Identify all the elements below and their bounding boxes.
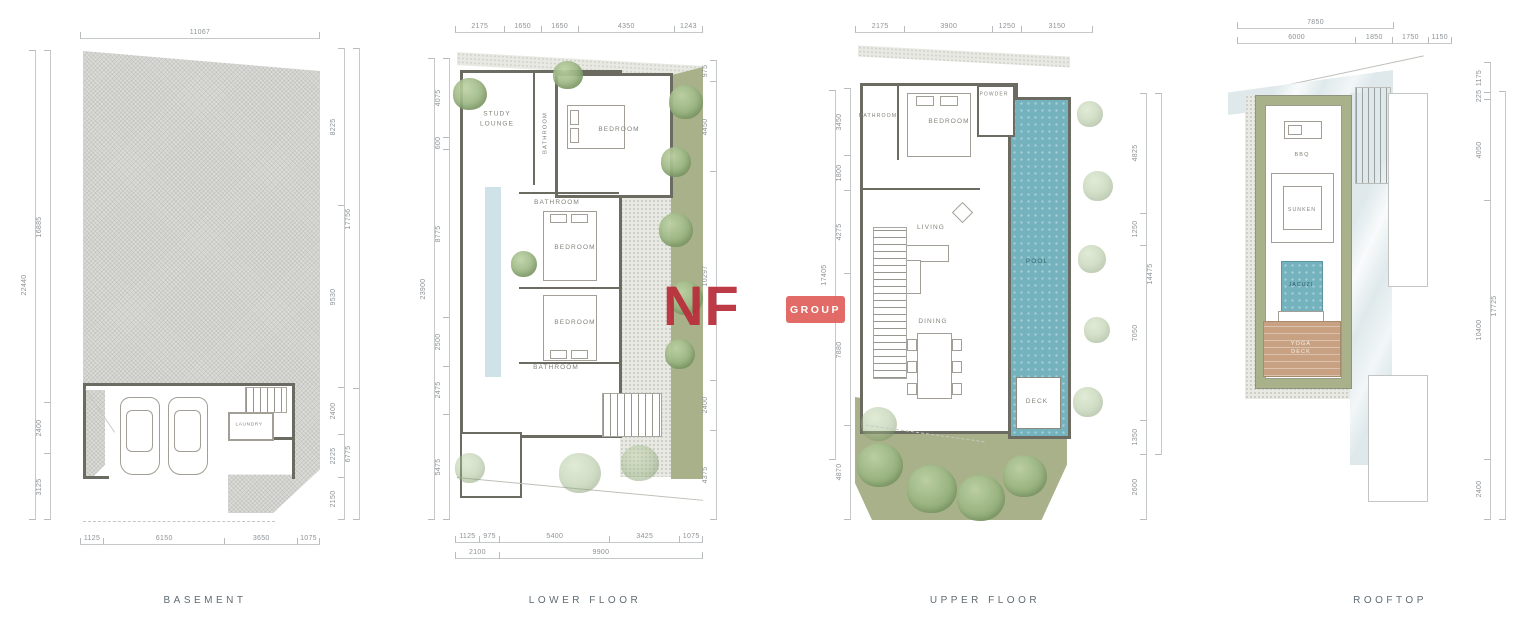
- room-label-dining: DINING: [916, 317, 949, 327]
- room-label-bathroom: BATHROOM: [534, 198, 580, 208]
- floor-plans-sheet: LAUNDRY 11067 22440 1688524003125 822595…: [0, 0, 1525, 631]
- dim-segment: 6150: [103, 538, 224, 545]
- dim-label: 4870: [836, 464, 843, 481]
- dim-label: 4275: [836, 224, 843, 241]
- dim-segment: 6775: [353, 388, 360, 520]
- dim-label: 1350: [1132, 429, 1139, 446]
- dim-segment: 2400: [338, 387, 345, 434]
- dim-segment: 2225: [338, 434, 345, 477]
- dim-label: 2600: [1132, 479, 1139, 496]
- dim-segment: 3150: [1021, 26, 1093, 33]
- dim-label: 16885: [36, 216, 43, 237]
- dim-segment: 9900: [499, 552, 703, 559]
- dim-label: 6775: [345, 446, 352, 463]
- dim-segment: 1125: [455, 536, 479, 543]
- dim-segment: 600: [443, 137, 450, 149]
- dim-label: 8225: [330, 119, 337, 136]
- tree: [511, 251, 537, 277]
- tree: [559, 453, 601, 493]
- dim-chain-upper-right-inner: 48251250705013502600: [1133, 93, 1146, 520]
- bed-pillow: [940, 96, 958, 106]
- chair: [907, 339, 917, 351]
- laundry-label: LAUNDRY: [235, 421, 262, 428]
- dim-chain-basement-top: 11067: [80, 26, 320, 39]
- room-label-bathroom: BATHROOM: [533, 363, 579, 373]
- dim-label: 23900: [420, 279, 427, 300]
- dim-segment: 3425: [609, 536, 679, 543]
- room-label-jacuzzi: JACUZI: [1289, 282, 1314, 290]
- dim-label: 3450: [836, 114, 843, 131]
- dim-segment: 2500: [443, 317, 450, 366]
- dim-segment: 17405: [829, 90, 836, 460]
- dim-label: 2175: [471, 23, 488, 30]
- tree: [1084, 317, 1110, 343]
- dim-label: 4075: [435, 89, 442, 106]
- floor-label-rooftop: ROOFTOP: [1300, 595, 1480, 606]
- dim-segment: 8775: [443, 149, 450, 317]
- dim-label: 2400: [702, 397, 709, 414]
- dim-segment: 1075: [679, 536, 703, 543]
- dim-label: 2100: [469, 549, 486, 556]
- roof-terrace-outline: [1368, 375, 1428, 502]
- bed-pillow: [916, 96, 934, 106]
- tree: [1073, 387, 1103, 417]
- tree: [957, 475, 1005, 521]
- dim-segment: 9530: [338, 205, 345, 387]
- upper-floor-plan: BATHROOM BEDROOM POWDER LIVING DINING PO…: [855, 45, 1105, 525]
- dim-chain-upper-right-outer: 14475: [1148, 93, 1161, 455]
- dim-segment: 6000: [1237, 37, 1355, 44]
- room-label-powder: POWDER: [979, 91, 1008, 99]
- dim-label: 2400: [330, 403, 337, 420]
- roof-terrace-outline: [1388, 93, 1428, 287]
- dim-chain-rooftop-top-outer: 7850: [1237, 16, 1394, 29]
- dim-chain-basement-left-inner: 1688524003125: [37, 50, 50, 520]
- pergola-slats: [1355, 87, 1391, 184]
- dim-chain-rooftop-right-inner: 11752254050104002400: [1477, 62, 1490, 520]
- dim-label: 3650: [253, 535, 270, 542]
- dim-segment: 7880: [844, 273, 851, 425]
- dim-chain-lower-left-inner: 40756008775250024755475: [436, 58, 449, 520]
- car-roof: [174, 410, 201, 452]
- dim-label: 1150: [1432, 34, 1448, 41]
- tree: [907, 465, 957, 513]
- room-label-bbq: BBQ: [1295, 151, 1310, 159]
- dim-segment: 1250: [992, 26, 1021, 33]
- dim-label: 975: [702, 65, 709, 78]
- tree: [553, 61, 583, 89]
- dim-segment: 4375: [710, 430, 717, 520]
- dim-segment: 2400: [1484, 459, 1491, 520]
- dim-label: 9900: [593, 549, 610, 556]
- dim-segment: 10400: [1484, 200, 1491, 459]
- bed-pillow: [550, 350, 567, 359]
- dim-chain-upper-top: 2175390012503150: [855, 20, 1093, 33]
- dim-segment: 1850: [1355, 37, 1392, 44]
- dim-label: 10400: [1476, 319, 1483, 340]
- dim-label: 22440: [21, 275, 28, 296]
- dim-label: 6150: [156, 535, 173, 542]
- basement-plot-hatch: [83, 51, 320, 385]
- tree: [1078, 245, 1106, 273]
- tree: [455, 453, 485, 483]
- dim-segment: 8225: [338, 48, 345, 205]
- dim-segment: 1350: [1140, 420, 1147, 454]
- tree: [665, 339, 695, 369]
- dim-segment: 1750: [1392, 37, 1427, 44]
- bed-pillow: [570, 128, 579, 143]
- chair: [907, 361, 917, 373]
- basement-plan: LAUNDRY: [68, 45, 320, 530]
- partition: [519, 192, 619, 194]
- dim-segment: 975: [479, 536, 500, 543]
- dim-chain-lower-bottom-outer: 21009900: [455, 546, 703, 559]
- tree: [669, 85, 703, 119]
- dim-segment: 5400: [499, 536, 609, 543]
- dim-label: 1650: [551, 23, 568, 30]
- chair: [952, 361, 962, 373]
- dim-label: 11067: [190, 29, 210, 36]
- dim-segment: 975: [710, 60, 717, 81]
- study-partition: [533, 73, 535, 185]
- bed-pillow: [571, 350, 588, 359]
- dim-segment: 17756: [353, 48, 360, 388]
- dim-segment: 4870: [844, 425, 851, 520]
- dim-label: 1650: [514, 23, 531, 30]
- dim-label: 1175: [1476, 69, 1483, 85]
- dim-label: 14475: [1147, 264, 1154, 285]
- dim-chain-rooftop-top-inner: 6000185017501150: [1237, 31, 1452, 44]
- dim-label: 6000: [1288, 34, 1305, 41]
- roof-gravel-strip: [1245, 95, 1255, 387]
- dim-segment: 1250: [1140, 213, 1147, 245]
- room-label-bathroom: BATHROOM: [542, 112, 551, 154]
- dim-segment: 2100: [455, 552, 499, 559]
- dim-segment: 2175: [455, 26, 504, 33]
- room-label-sunken: SUNKEN: [1287, 207, 1317, 215]
- dim-label: 1850: [1366, 34, 1383, 41]
- dim-label: 3150: [1049, 23, 1066, 30]
- partition: [860, 188, 980, 190]
- dim-label: 7850: [1307, 19, 1324, 26]
- bed-pillow: [571, 214, 588, 223]
- car: [168, 397, 208, 475]
- room-label-bedroom: BEDROOM: [928, 117, 969, 127]
- garage-wall-top: [83, 383, 295, 386]
- dim-label: 1125: [84, 535, 100, 542]
- dim-segment: 2400: [710, 380, 717, 429]
- dim-segment: 14475: [1155, 93, 1162, 455]
- chair: [907, 383, 917, 395]
- dim-label: 17725: [1491, 295, 1498, 316]
- dim-label: 4050: [1476, 141, 1483, 158]
- dim-label: 9530: [330, 288, 337, 305]
- dim-segment: 2175: [855, 26, 904, 33]
- room-label-living: LIVING: [917, 223, 945, 233]
- dim-label: 600: [435, 137, 442, 150]
- dining-table: [917, 333, 952, 399]
- dim-segment: 1243: [674, 26, 703, 33]
- dim-segment: 22440: [29, 50, 36, 520]
- room-label-deck: DECK: [1026, 397, 1048, 407]
- dim-label: 1250: [999, 23, 1016, 30]
- bed-pillow: [550, 214, 567, 223]
- dim-segment: 5475: [443, 414, 450, 520]
- side-garden-band: [671, 67, 703, 479]
- room-label-bedroom: BEDROOM: [554, 318, 595, 328]
- lower-staircase: [602, 393, 662, 437]
- dim-chain-lower-left-outer: 23900: [421, 58, 434, 520]
- tree: [621, 445, 659, 481]
- watermark-brand-logo: NF: [663, 278, 740, 334]
- floor-label-lower: LOWER FLOOR: [495, 595, 675, 606]
- dim-label: 975: [483, 533, 496, 540]
- floor-label-upper: UPPER FLOOR: [895, 595, 1075, 606]
- dim-segment: 1650: [541, 26, 578, 33]
- dim-label: 17756: [345, 208, 352, 229]
- tree: [659, 213, 693, 247]
- dim-chain-upper-left-outer: 17405: [822, 90, 835, 460]
- dim-label: 3900: [940, 23, 957, 30]
- room-label-bathroom: BATHROOM: [859, 113, 897, 121]
- dim-label: 2225: [330, 448, 337, 465]
- dim-chain-basement-right-inner: 82259530240022252150: [331, 48, 344, 520]
- dim-chain-lower-top: 21751650165043501243: [455, 20, 703, 33]
- car: [120, 397, 160, 475]
- chair: [952, 339, 962, 351]
- dim-label: 5400: [546, 533, 563, 540]
- dim-label: 1125: [459, 533, 475, 540]
- room-label-pool: POOL: [1026, 257, 1048, 267]
- dim-label: 4450: [702, 118, 709, 135]
- dim-label: 2175: [872, 23, 889, 30]
- dim-label: 2400: [1476, 481, 1483, 498]
- garage-wall-left: [83, 383, 86, 479]
- dim-label: 3125: [36, 478, 43, 495]
- dim-label: 225: [1476, 90, 1483, 103]
- tree: [1083, 171, 1113, 201]
- bathroom-partition: [897, 85, 899, 160]
- dim-label: 17405: [821, 265, 828, 286]
- dim-segment: 3450: [844, 88, 851, 155]
- bbq-grill: [1288, 125, 1302, 135]
- dim-segment: 4825: [1140, 93, 1147, 213]
- dim-label: 1800: [836, 165, 843, 182]
- dim-segment: 1150: [1428, 37, 1452, 44]
- room-label-bedroom: BEDROOM: [554, 243, 595, 253]
- dim-segment: 4275: [844, 190, 851, 273]
- floor-label-basement: BASEMENT: [115, 595, 295, 606]
- watermark-box: GROUP: [786, 296, 845, 323]
- tree: [661, 147, 691, 177]
- dim-segment: 7050: [1140, 245, 1147, 420]
- dim-label: 4825: [1132, 145, 1139, 162]
- dim-segment: 11067: [80, 32, 320, 39]
- dim-segment: 16885: [44, 50, 51, 402]
- dim-label: 2475: [435, 382, 442, 399]
- garage-wall-bottom-left: [83, 476, 109, 479]
- property-dashed-line: [83, 521, 275, 522]
- garage-wall-right: [292, 383, 295, 479]
- dim-chain-rooftop-right-outer: 17725: [1492, 91, 1505, 520]
- dim-segment: 3900: [904, 26, 992, 33]
- room-label-yoga-deck: YOGA DECK: [1281, 340, 1321, 357]
- car-roof: [126, 410, 153, 452]
- dim-segment: 2400: [44, 402, 51, 453]
- tree: [453, 78, 487, 110]
- dim-segment: 1800: [844, 155, 851, 190]
- dim-label: 5475: [435, 459, 442, 476]
- chair: [952, 383, 962, 395]
- rooftop-plan: BBQ SUNKEN JACUZI YOGA DECK: [1228, 45, 1463, 525]
- dim-label: 1250: [1132, 221, 1139, 238]
- dim-segment: 7850: [1237, 22, 1394, 29]
- dim-label: 3425: [636, 533, 653, 540]
- dim-segment: 17725: [1499, 91, 1506, 520]
- dim-label: 1075: [683, 533, 700, 540]
- dim-label: 4350: [618, 23, 635, 30]
- dim-label: 7880: [836, 341, 843, 358]
- water-feature: [485, 187, 501, 377]
- tree: [1077, 101, 1103, 127]
- dim-label: 1243: [680, 23, 697, 30]
- dim-segment: 23900: [428, 58, 435, 520]
- dim-segment: 2475: [443, 366, 450, 414]
- basement-staircase: [245, 387, 287, 413]
- dim-segment: 4350: [578, 26, 674, 33]
- dim-segment: 1075: [297, 538, 320, 545]
- bed: [543, 295, 597, 361]
- dim-label: 1750: [1402, 34, 1419, 41]
- dim-segment: 1125: [80, 538, 103, 545]
- dim-label: 2150: [330, 490, 337, 507]
- dim-chain-basement-left-outer: 22440: [22, 50, 35, 520]
- partition: [519, 287, 619, 289]
- dim-segment: 2600: [1140, 454, 1147, 520]
- watermark-suffix: GROUP: [790, 304, 841, 316]
- dim-segment: 3650: [224, 538, 296, 545]
- room-label-bedroom: BEDROOM: [598, 125, 639, 135]
- dim-segment: 3125: [44, 453, 51, 520]
- upper-staircase: [873, 227, 907, 379]
- bbq-counter: [1284, 121, 1322, 139]
- dim-chain-basement-bottom: 1125615036501075: [80, 532, 320, 545]
- dim-segment: 1175: [1484, 62, 1491, 92]
- dim-label: 8775: [435, 225, 442, 242]
- room-label-study-lounge: STUDY LOUNGE: [471, 109, 523, 129]
- dim-segment: 4050: [1484, 99, 1491, 200]
- bed-pillow: [570, 110, 579, 125]
- tree: [857, 443, 903, 487]
- dim-segment: 225: [1484, 92, 1491, 99]
- dim-segment: 1650: [504, 26, 541, 33]
- dim-label: 2400: [36, 420, 43, 437]
- dim-label: 7050: [1132, 324, 1139, 341]
- dim-segment: 2150: [338, 477, 345, 520]
- dim-chain-lower-bottom-inner: 1125975540034251075: [455, 530, 703, 543]
- dim-chain-basement-right-outer: 177566775: [346, 48, 359, 520]
- dim-label: 2500: [435, 333, 442, 350]
- dim-segment: 4075: [443, 58, 450, 137]
- dim-label: 4375: [702, 466, 709, 483]
- gravel-top-band: [858, 45, 1070, 67]
- dim-segment: 4450: [710, 81, 717, 172]
- tree: [1003, 455, 1047, 497]
- dim-label: 1075: [300, 535, 317, 542]
